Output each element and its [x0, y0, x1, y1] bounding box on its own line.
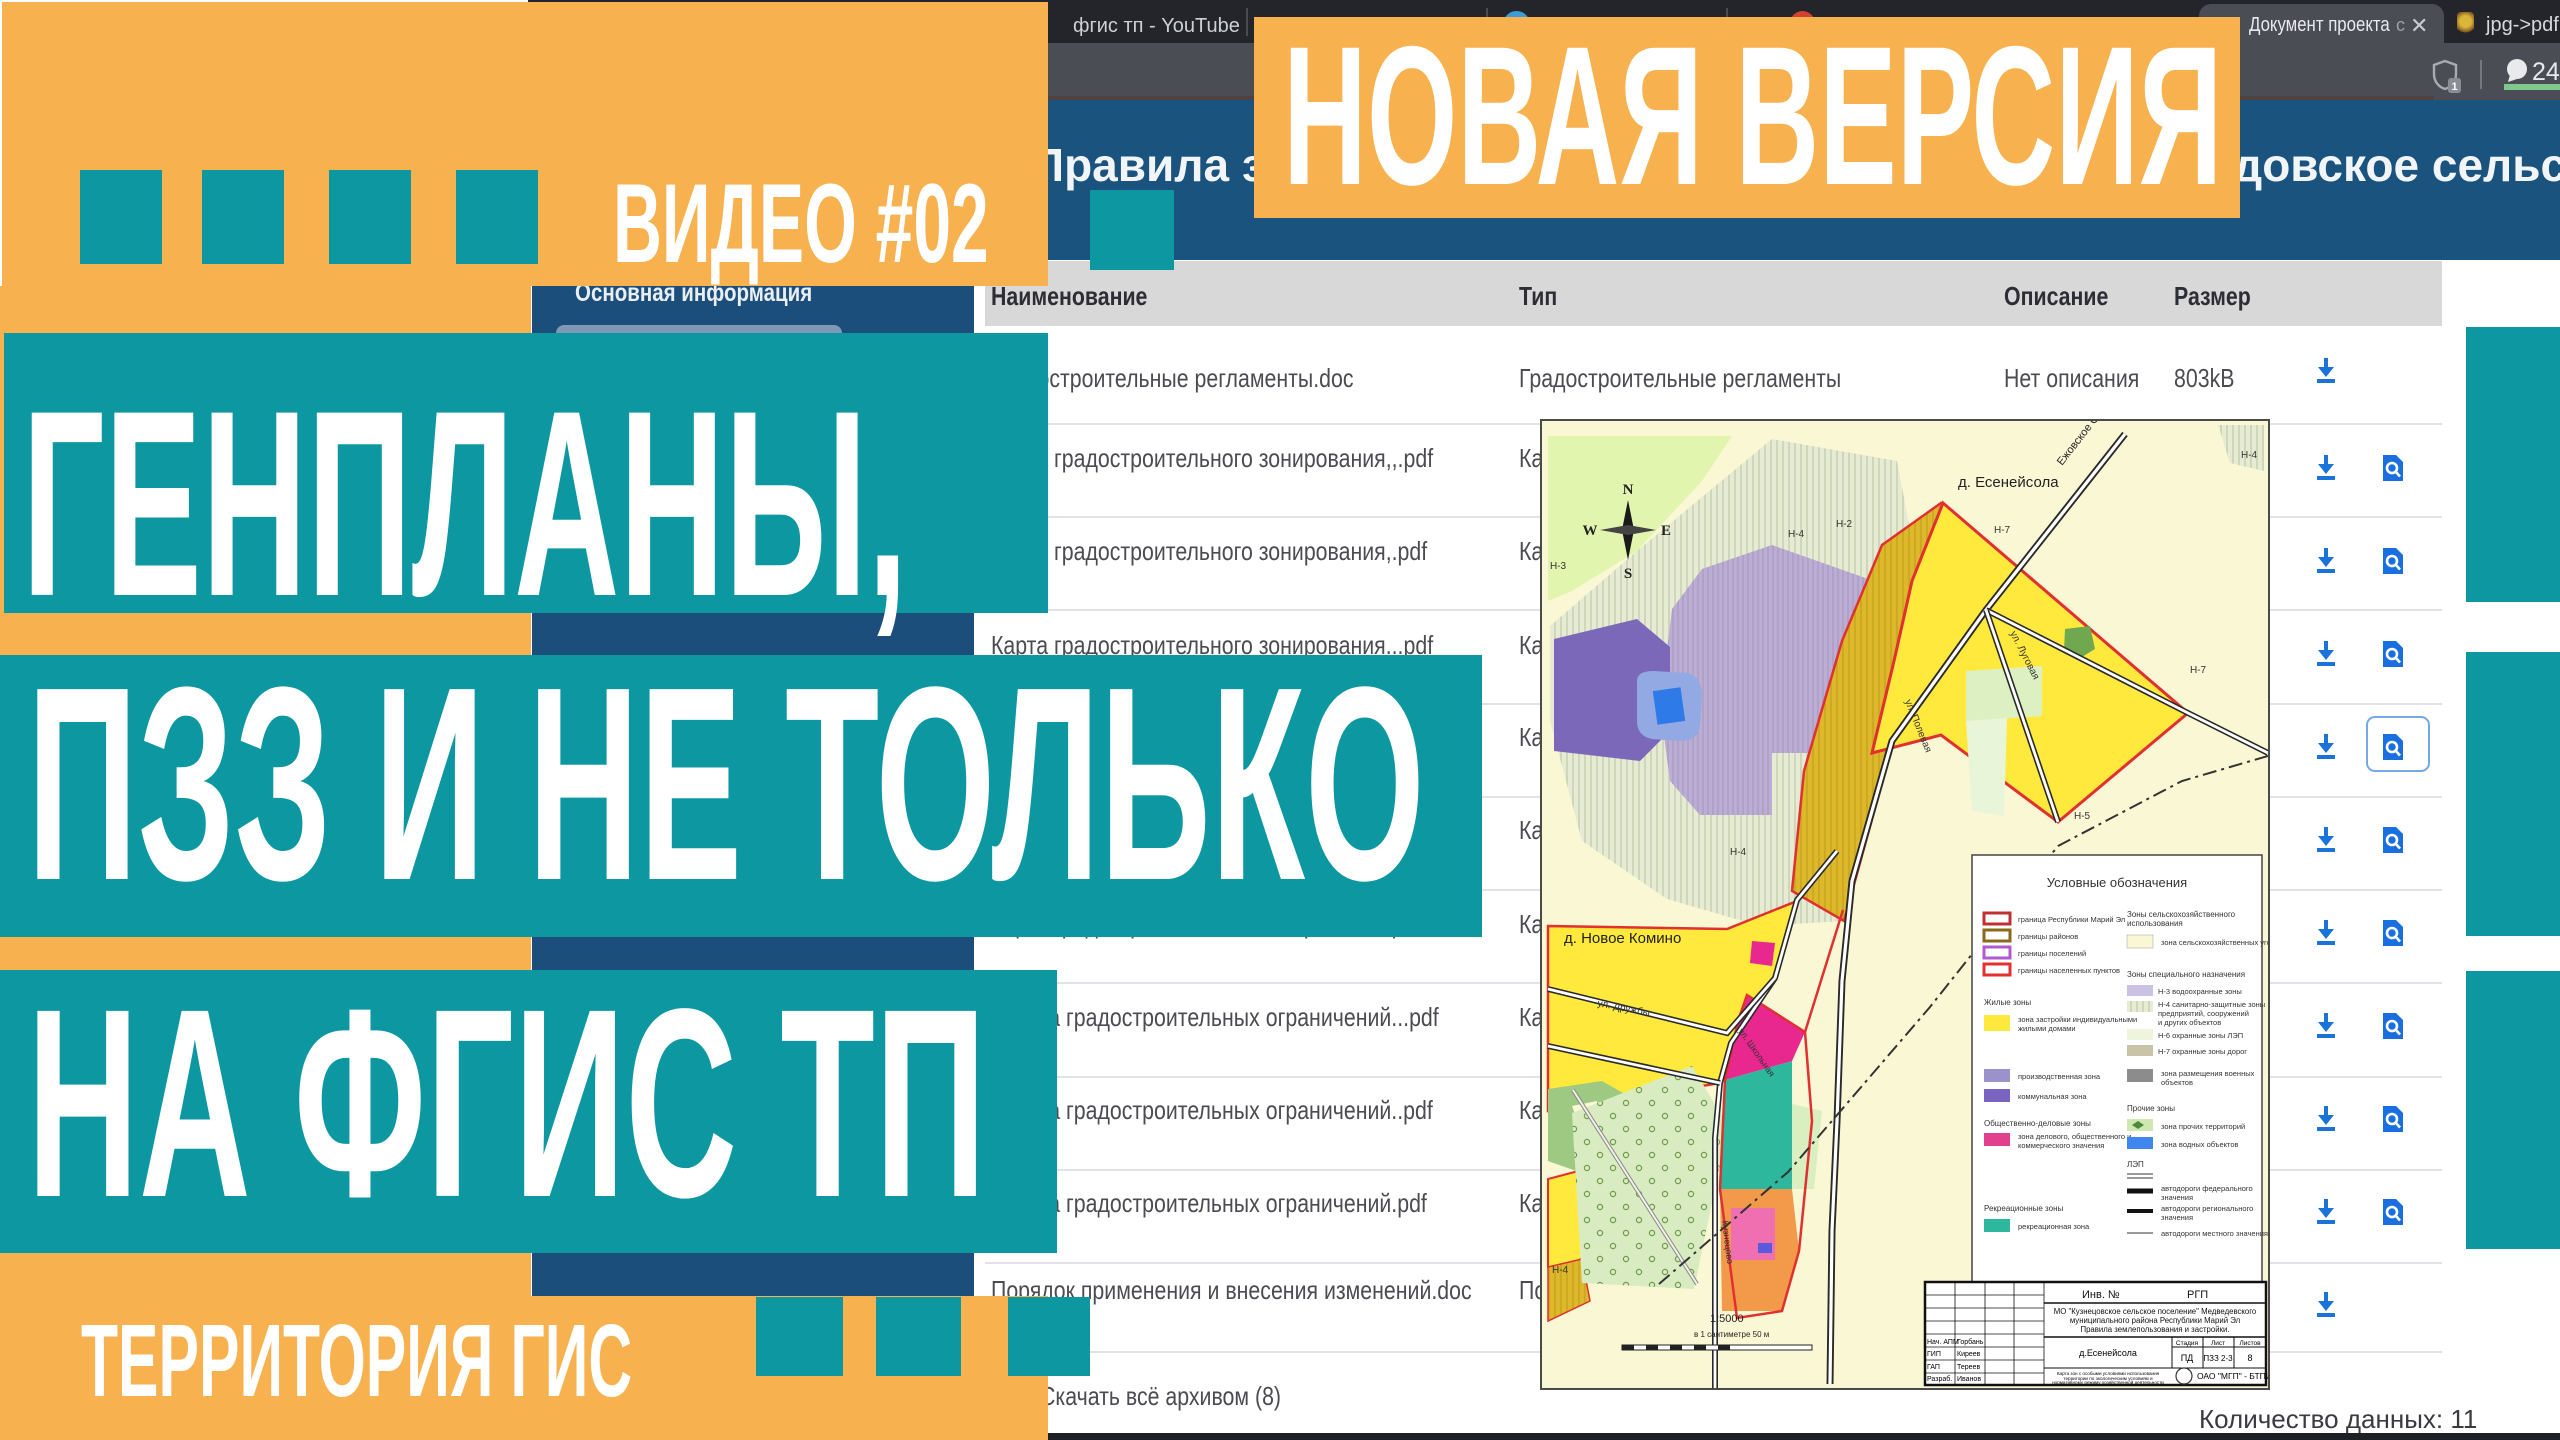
svg-text:1: 1: [2451, 81, 2457, 93]
svg-text:рекреационная зона: рекреационная зона: [2018, 1222, 2090, 1231]
svg-text:зона застройки индивидуальными: зона застройки индивидуальными: [2018, 1015, 2137, 1024]
svg-text:Правила землепользования и зас: Правила землепользования и застройки.: [2080, 1325, 2229, 1334]
svg-text:значения: значения: [2161, 1193, 2193, 1202]
svg-text:Н-4: Н-4: [1730, 847, 1747, 858]
svg-text:Н-4: Н-4: [1552, 1265, 1569, 1276]
svg-text:ОАО "МГП" - БТПИ": ОАО "МГП" - БТПИ": [2197, 1371, 2268, 1381]
svg-text:ПД: ПД: [2181, 1353, 2194, 1363]
svg-text:значения: значения: [2161, 1213, 2193, 1222]
svg-text:Н-4 санитарно-защитные зоны: Н-4 санитарно-защитные зоны: [2158, 1000, 2265, 1009]
svg-text:ЛЭП: ЛЭП: [2127, 1160, 2144, 1169]
svg-text:W: W: [1583, 523, 1598, 539]
svg-text:д. Есенейсола: д. Есенейсола: [1958, 474, 2059, 491]
svg-text:нормативному режиму хозяйствен: нормативному режиму хозяйственной деятел…: [2052, 1379, 2164, 1385]
svg-text:Разраб.: Разраб.: [1927, 1375, 1952, 1383]
svg-text:Стадия: Стадия: [2176, 1340, 2199, 1347]
svg-text:8: 8: [2247, 1353, 2252, 1363]
svg-text:Н-5: Н-5: [2074, 811, 2091, 822]
svg-text:в 1 сантиметре 50 м: в 1 сантиметре 50 м: [1694, 1330, 1769, 1339]
svg-text:использования: использования: [2127, 919, 2183, 928]
svg-text:Прочие зоны: Прочие зоны: [2127, 1104, 2175, 1113]
svg-text:автодороги федерального: автодороги федерального: [2161, 1184, 2253, 1193]
svg-text:Листов: Листов: [2239, 1340, 2261, 1347]
svg-text:Н-7: Н-7: [1994, 525, 2011, 536]
svg-text:коммунальная зона: коммунальная зона: [2018, 1092, 2087, 1101]
svg-text:N: N: [1623, 482, 1634, 498]
svg-text:зона водных объектов: зона водных объектов: [2161, 1140, 2239, 1149]
svg-text:Нач. АПМ: Нач. АПМ: [1927, 1339, 1959, 1346]
svg-text:Рекреационные зоны: Рекреационные зоны: [1984, 1204, 2063, 1213]
svg-text:Зоны специального назначения: Зоны специального назначения: [2127, 970, 2245, 979]
svg-text:Н-4: Н-4: [1788, 529, 1805, 540]
svg-text:ГИП: ГИП: [1927, 1351, 1941, 1358]
svg-text:и других объектов: и других объектов: [2158, 1018, 2221, 1027]
svg-text:Н-6 охранные зоны ЛЭП: Н-6 охранные зоны ЛЭП: [2158, 1031, 2243, 1040]
svg-text:Тереев: Тереев: [1957, 1364, 1980, 1371]
svg-text:коммерческого значения: коммерческого значения: [2018, 1141, 2104, 1150]
svg-text:Иванов: Иванов: [1957, 1376, 1981, 1383]
svg-text:граница Республики Марий Эл: граница Республики Марий Эл: [2018, 915, 2125, 924]
svg-text:Н-7 охранные зоны дорог: Н-7 охранные зоны дорог: [2158, 1047, 2247, 1056]
svg-text:S: S: [1624, 566, 1632, 582]
svg-text:Н-3: Н-3: [1550, 561, 1567, 572]
svg-text:зона делового, общественного и: зона делового, общественного и: [2018, 1132, 2131, 1141]
svg-text:границы поселений: границы поселений: [2018, 949, 2086, 958]
svg-text:Жилые зоны: Жилые зоны: [1984, 998, 2031, 1007]
svg-text:зона прочих территорий: зона прочих территорий: [2161, 1122, 2245, 1131]
svg-text:автодороги регионального: автодороги регионального: [2161, 1204, 2253, 1213]
svg-text:ГАП: ГАП: [1927, 1364, 1940, 1371]
svg-text:предприятий, сооружений: предприятий, сооружений: [2158, 1009, 2249, 1018]
svg-text:жилыми домами: жилыми домами: [2018, 1024, 2076, 1033]
svg-text:Общественно-деловые зоны: Общественно-деловые зоны: [1984, 1119, 2091, 1128]
svg-text:Горбань: Горбань: [1957, 1338, 1984, 1346]
svg-text:Условные обозначения: Условные обозначения: [2047, 875, 2187, 890]
svg-text:Зоны сельскохозяйственного: Зоны сельскохозяйственного: [2127, 910, 2236, 919]
svg-text:автодороги местного значения: автодороги местного значения: [2161, 1229, 2268, 1238]
svg-text:муниципального района Республи: муниципального района Республики Марий Э…: [2070, 1316, 2241, 1325]
svg-text:границы районов: границы районов: [2018, 932, 2078, 941]
svg-text:д. Новое Комино: д. Новое Комино: [1564, 930, 1681, 947]
svg-text:Лист: Лист: [2211, 1340, 2225, 1347]
svg-text:Н-4: Н-4: [2241, 450, 2258, 461]
svg-text:1:5000: 1:5000: [1710, 1313, 1744, 1325]
svg-text:Н-2: Н-2: [1836, 519, 1853, 530]
svg-text:Н-7: Н-7: [2190, 665, 2207, 676]
svg-text:зона размещения военных: зона размещения военных: [2161, 1069, 2255, 1078]
svg-text:объектов: объектов: [2161, 1078, 2193, 1087]
svg-text:ПЗЗ 2-3: ПЗЗ 2-3: [2203, 1354, 2233, 1363]
svg-text:д.Есенейсола: д.Есенейсола: [2079, 1348, 2137, 1358]
svg-text:E: E: [1661, 523, 1671, 539]
svg-text:РГП: РГП: [2187, 1289, 2208, 1301]
svg-text:Киреев: Киреев: [1957, 1351, 1981, 1358]
svg-text:Инв. №: Инв. №: [2082, 1289, 2120, 1301]
svg-text:Н-3 водоохранные зоны: Н-3 водоохранные зоны: [2158, 987, 2242, 996]
svg-text:МО "Кузнецовское сельское посе: МО "Кузнецовское сельское поселение" Мед…: [2054, 1307, 2257, 1316]
svg-text:зона сельскохозяйственных угод: зона сельскохозяйственных угодий: [2161, 938, 2268, 947]
svg-text:границы населенных пунктов: границы населенных пунктов: [2018, 966, 2120, 975]
svg-text:производственная зона: производственная зона: [2018, 1072, 2101, 1081]
